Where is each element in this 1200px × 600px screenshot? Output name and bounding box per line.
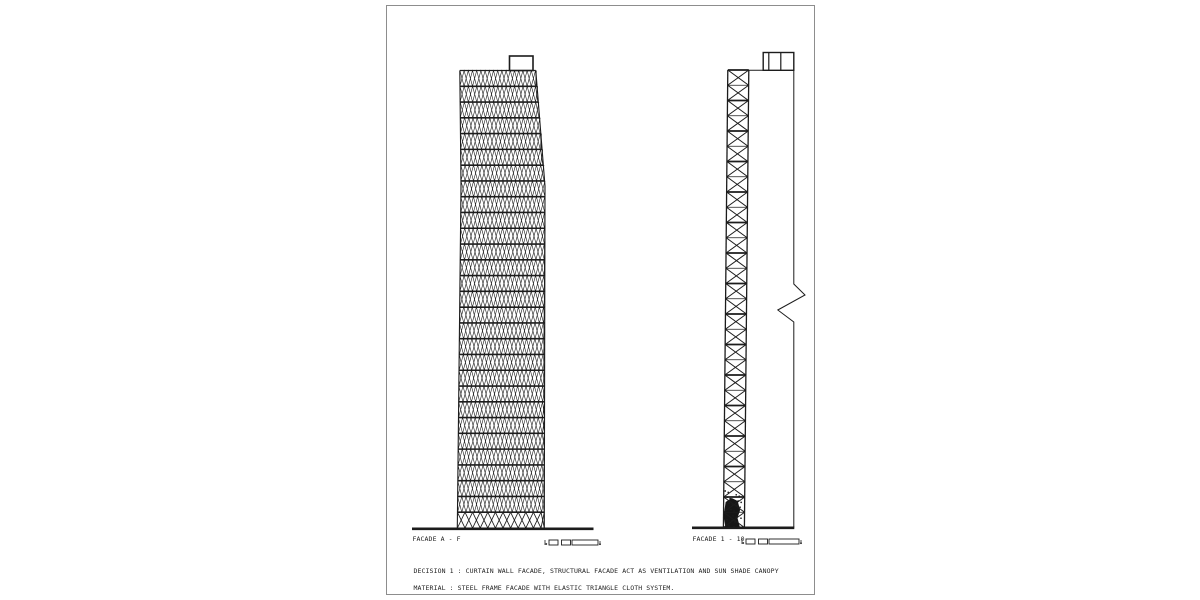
facade-1-10-label: FACADE 1 - 10 [693,536,745,543]
note-decision-line: DECISION 1 : CURTAIN WALL FACADE, STRUCT… [414,568,779,575]
drawing-sheet: FACADE A - F FACADE 1 - 10 DECISION 1 : … [386,5,815,595]
right-roof-box [763,53,794,71]
drawing-canvas: FACADE A - F FACADE 1 - 10 DECISION 1 : … [0,0,1200,600]
facade-a-f-label: FACADE A - F [413,536,461,543]
scale-bar [742,539,802,544]
elevation-figure [387,6,814,594]
scale-bar [545,540,601,545]
left-tower-elevation [457,56,545,528]
note-material-line: MATERIAL : STEEL FRAME FACADE WITH ELAST… [414,585,675,592]
break-line [778,70,805,527]
right-tower-elevation [723,70,748,529]
left-roof-box [510,56,534,71]
